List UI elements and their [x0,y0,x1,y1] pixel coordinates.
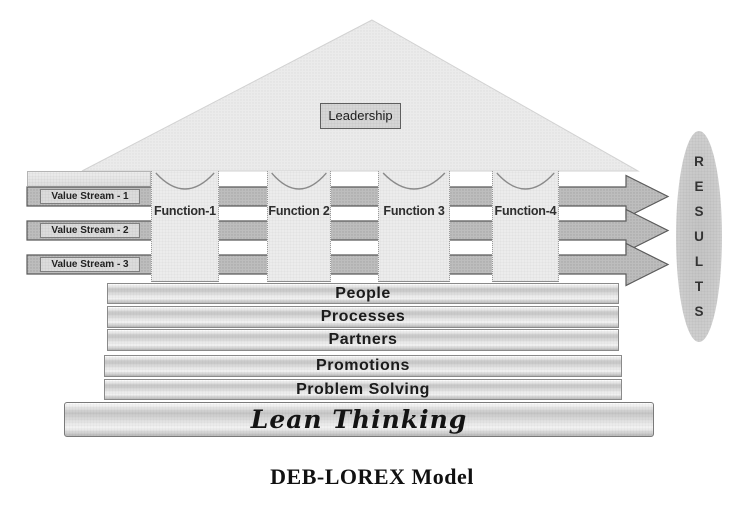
results-letter: E [694,174,703,199]
base-bar-lean-thinking: Lean Thinking [64,402,654,437]
diagram-caption: DEB-LOREX Model [0,464,744,490]
column-function-2: Function 2 [267,171,331,282]
value-stream-label-1: Value Stream - 1 [40,189,140,204]
column-label: Function-4 [485,204,566,218]
value-stream-label-2: Value Stream - 2 [40,223,140,238]
foundation-bar-problem-solving: Problem Solving [104,379,622,400]
column-label: Function 2 [260,204,338,218]
column-arch-icon [152,171,218,197]
column-function-4: Function-4 [492,171,559,282]
results-letter: S [694,299,703,324]
column-arch-icon [379,171,449,197]
results-oval: R E S U L T S [676,131,722,342]
column-function-1: Function-1 [151,171,219,282]
results-letter: L [695,249,703,274]
leadership-box: Leadership [320,103,401,129]
column-label: Function 3 [371,204,457,218]
column-arch-icon [493,171,558,197]
column-label: Function-1 [144,204,226,218]
foundation-bar-promotions: Promotions [104,355,622,377]
lintel-beam [27,171,151,187]
foundation-bar-people: People [107,283,619,304]
roof-triangle [82,20,638,171]
foundation-bar-partners: Partners [107,329,619,351]
results-letter: T [695,274,703,299]
column-arch-icon [268,171,330,197]
results-letter: U [694,224,704,249]
deb-lorex-model-diagram: Leadership Function-1 Function 2 Functio… [0,0,744,509]
results-letter: R [694,149,704,174]
column-function-3: Function 3 [378,171,450,282]
value-stream-label-3: Value Stream - 3 [40,257,140,272]
foundation-bar-processes: Processes [107,306,619,328]
results-letter: S [694,199,703,224]
